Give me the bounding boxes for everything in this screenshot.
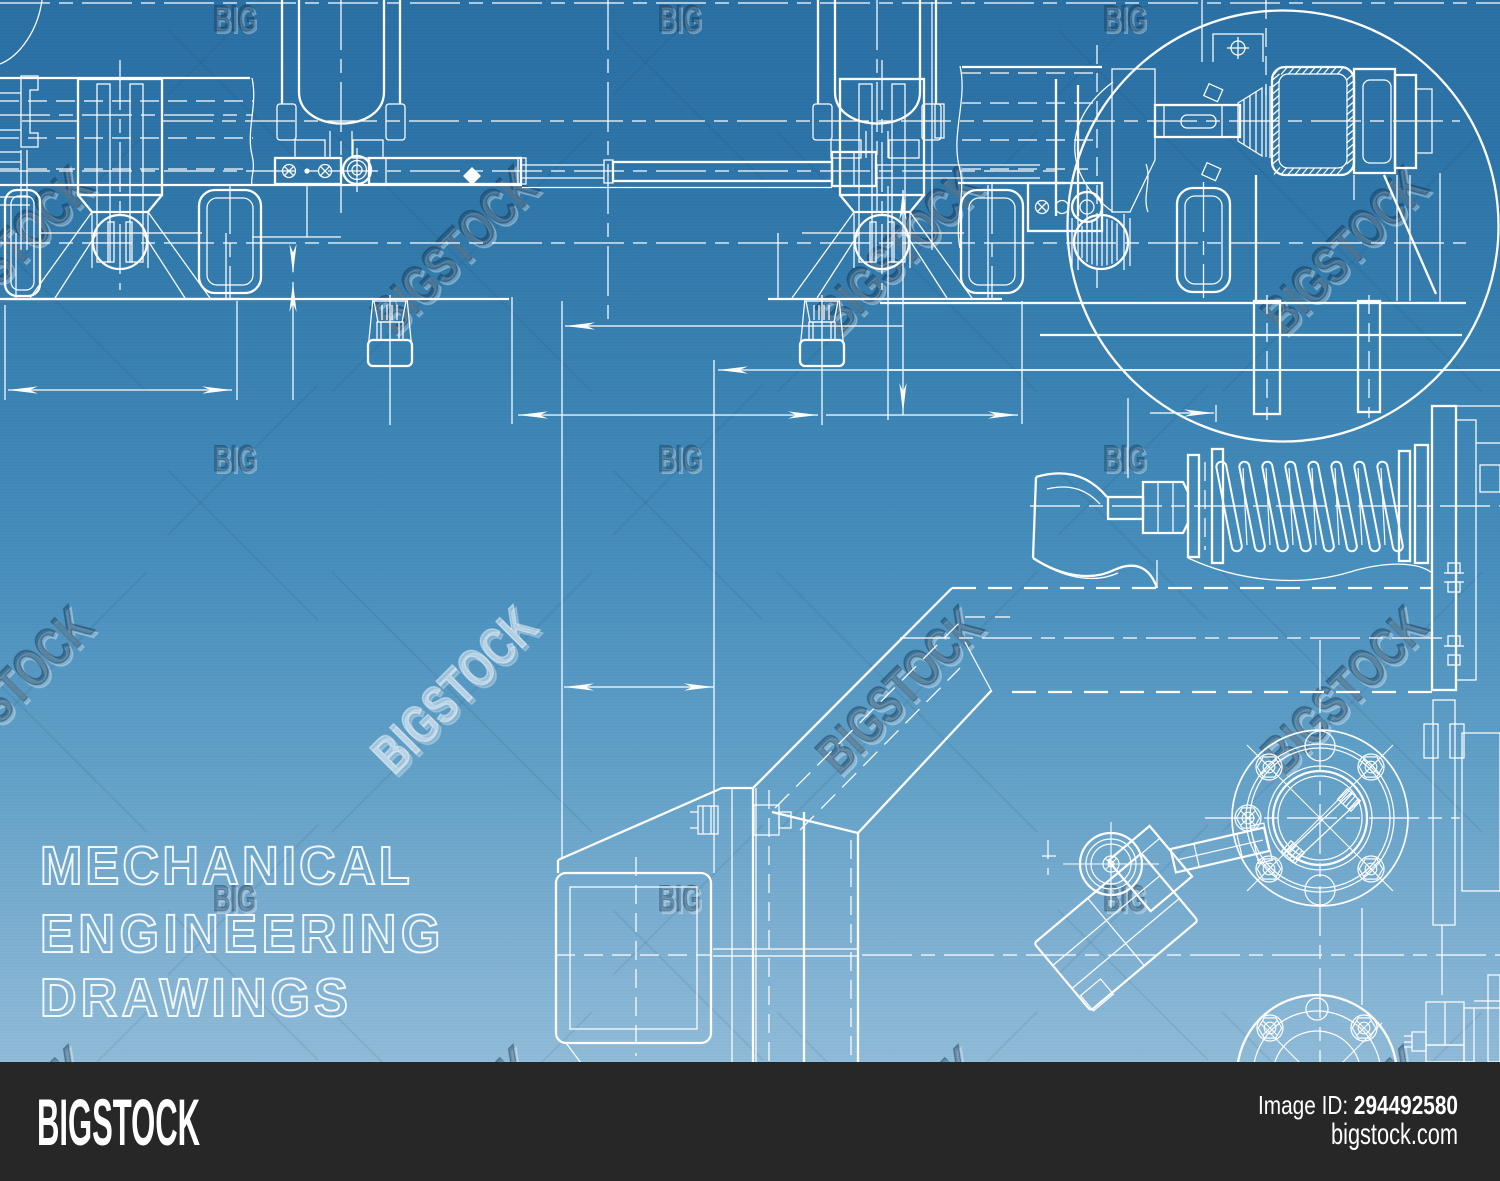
svg-text:BIGSTOCK: BIGSTOCK (37, 1085, 200, 1159)
svg-text:BIG: BIG (1103, 0, 1146, 39)
svg-text:BIG: BIG (213, 437, 256, 479)
svg-text:BIG: BIG (658, 0, 701, 39)
svg-text:Image ID: 294492580: Image ID: 294492580 (1258, 1090, 1458, 1120)
svg-text:bigstock.com: bigstock.com (1331, 1118, 1458, 1151)
svg-text:BIGSTOCK: BIGSTOCK (804, 595, 993, 784)
svg-text:DRAWINGS: DRAWINGS (40, 969, 352, 1029)
svg-text:BIG: BIG (213, 0, 256, 39)
svg-text:BIG: BIG (658, 437, 701, 479)
svg-text:BIGSTOCK: BIGSTOCK (0, 595, 104, 784)
svg-text:MECHANICAL: MECHANICAL (40, 837, 413, 897)
svg-text:BIGSTOCK: BIGSTOCK (1249, 595, 1438, 784)
svg-text:BIGSTOCK: BIGSTOCK (359, 595, 548, 784)
svg-text:BIG: BIG (1103, 437, 1146, 479)
svg-text:BIG: BIG (658, 877, 701, 919)
svg-text:ENGINEERING: ENGINEERING (40, 905, 445, 965)
